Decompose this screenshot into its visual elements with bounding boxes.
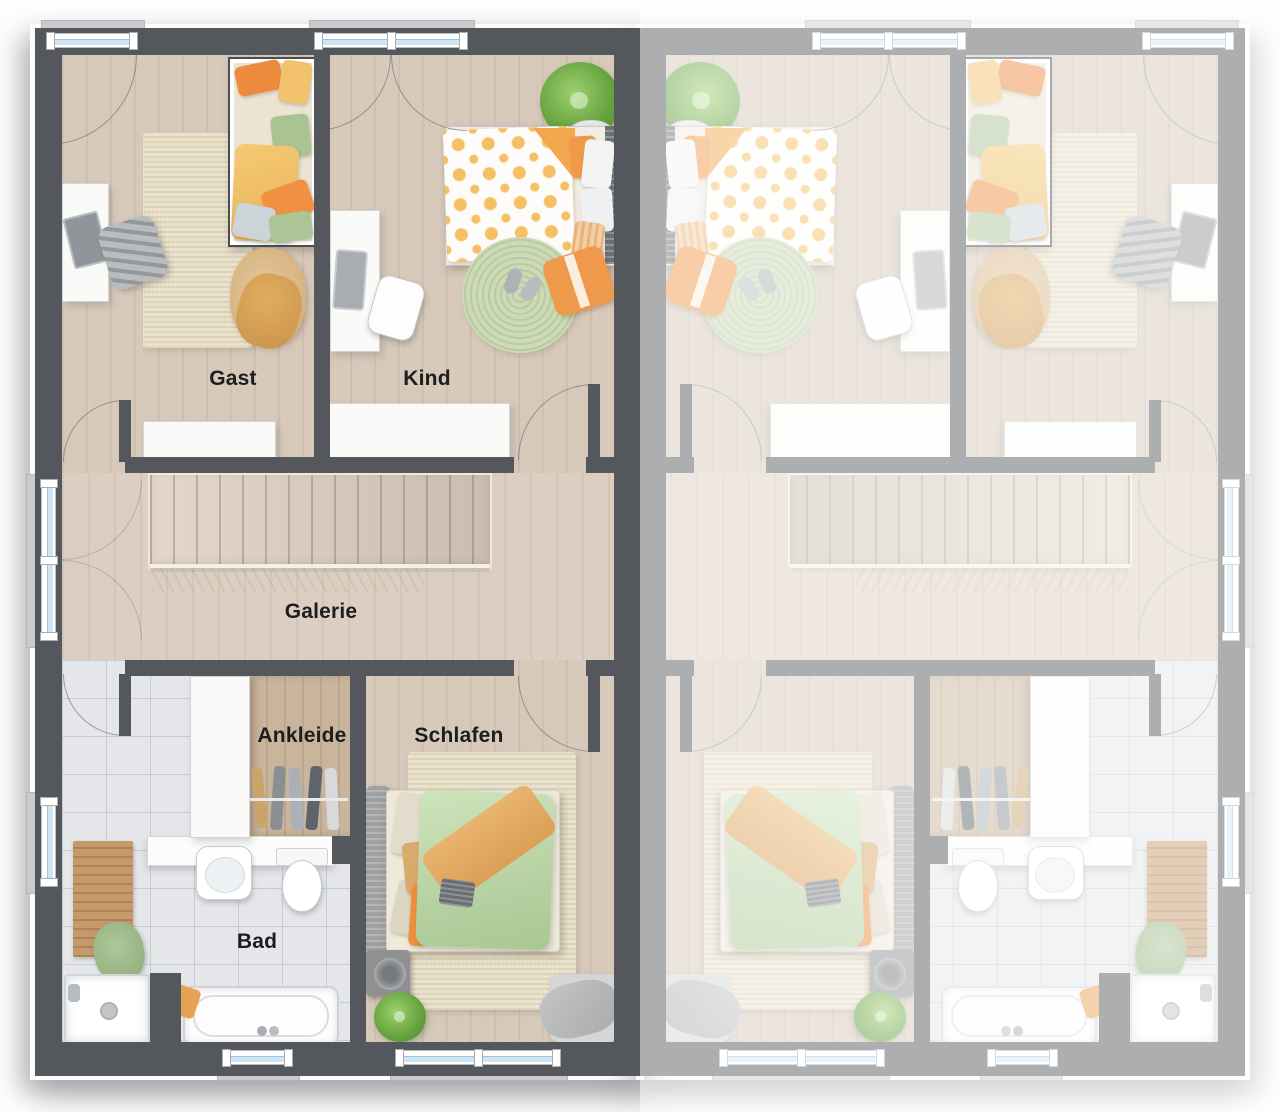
folded-item-schlafen	[438, 878, 475, 908]
clothes-rail	[932, 798, 1030, 801]
bed-gast	[962, 57, 1052, 247]
unit-left: Gast Kind Galerie Ankleide Schlafen Bad	[0, 0, 640, 1112]
window-schlafen	[720, 1050, 884, 1065]
wall-shower-stub	[150, 973, 181, 1042]
wardrobe-ankleide	[190, 676, 250, 838]
sink-basin	[205, 857, 245, 893]
stair-shadow-hatch	[152, 568, 424, 592]
sink-basin	[1035, 857, 1075, 893]
toilet-bowl	[958, 860, 998, 912]
window-cap	[957, 32, 966, 50]
sideboard-gast	[1004, 421, 1137, 459]
wall-bedrooms-galerie-1	[125, 457, 514, 473]
toilet	[274, 848, 328, 912]
window-bad-left	[1224, 798, 1239, 886]
window-cap	[459, 32, 468, 50]
window-gast	[47, 33, 137, 48]
shower-faucet	[68, 984, 80, 1002]
shower-drain	[100, 1002, 118, 1020]
window-schlafen	[396, 1050, 560, 1065]
bathtub-faucet	[257, 1026, 267, 1036]
wall-party	[640, 28, 666, 1076]
door-leaf-bad	[119, 674, 131, 736]
window-bad-bottom	[988, 1050, 1057, 1065]
pillow-yellow-gast	[967, 59, 1003, 105]
plant-schlafen	[374, 992, 426, 1042]
door-leaf-bad	[1149, 674, 1161, 736]
door-leaf-kind	[588, 384, 600, 460]
window-glass	[51, 39, 133, 45]
door-leaf-gast	[119, 400, 131, 462]
door-leaf-kind	[680, 384, 692, 460]
imac-kind	[912, 249, 948, 311]
window-cap	[1225, 32, 1234, 50]
wall-bad-schlafen	[350, 660, 366, 1042]
bathtub	[941, 986, 1097, 1046]
window-cap	[395, 1049, 404, 1067]
bed-schlafen	[366, 786, 562, 954]
window-bad-bottom	[223, 1050, 292, 1065]
wall-bad-schlafen	[914, 660, 930, 1042]
bed-gast	[228, 57, 318, 247]
window-cap	[46, 32, 55, 50]
bed-schlafen	[718, 786, 914, 954]
room-label-kind: Kind	[403, 367, 450, 391]
stairwell	[788, 473, 1132, 570]
window-glass	[992, 1056, 1053, 1062]
imac-kind	[332, 249, 368, 311]
wall-galerie-south-2	[666, 660, 694, 676]
shower-tray	[64, 974, 150, 1044]
wall-galerie-south-2	[586, 660, 614, 676]
room-label-schlafen: Schlafen	[414, 724, 503, 748]
wall-galerie-south-1	[125, 660, 514, 676]
door-leaf-schlafen	[588, 676, 600, 752]
window-cap	[719, 1049, 728, 1067]
window-glass	[1147, 39, 1229, 45]
plant-schlafen	[854, 992, 906, 1042]
window-cap	[812, 32, 821, 50]
sink	[1028, 846, 1084, 900]
window-cap	[797, 1049, 806, 1067]
window-cap	[129, 32, 138, 50]
window-cap	[1222, 556, 1240, 565]
wardrobe-ankleide	[1030, 676, 1090, 838]
window-cap	[40, 479, 58, 488]
speaker-schlafen	[870, 950, 914, 996]
window-cap	[40, 556, 58, 565]
window-cap	[884, 32, 893, 50]
room-label-galerie: Galerie	[285, 600, 358, 624]
unit-right	[640, 0, 1280, 1112]
shower-drain	[1162, 1002, 1180, 1020]
pillow-white-kind	[665, 139, 700, 190]
toilet	[952, 848, 1006, 912]
wall-divider-gast-kind	[314, 55, 330, 458]
folded-item-schlafen	[804, 878, 841, 908]
window-cap	[1222, 632, 1240, 641]
window-cap	[314, 32, 323, 50]
bathtub	[183, 986, 339, 1046]
window-bad-left	[41, 798, 56, 886]
wall-galerie-south-1	[766, 660, 1155, 676]
window-kind	[315, 33, 467, 48]
window-galerie	[41, 480, 56, 640]
window-cap	[474, 1049, 483, 1067]
window-cap	[1049, 1049, 1058, 1067]
speaker-schlafen	[366, 950, 410, 996]
window-cap	[1222, 878, 1240, 887]
pillow-yellow-gast	[277, 59, 313, 105]
sideboard-kind	[322, 403, 510, 459]
window-cap	[284, 1049, 293, 1067]
shower-tray	[1130, 974, 1216, 1044]
wall-party	[614, 28, 640, 1076]
window-kind	[813, 33, 965, 48]
window-cap	[1142, 32, 1151, 50]
window-cap	[222, 1049, 231, 1067]
window-cap	[987, 1049, 996, 1067]
window-galerie	[1224, 480, 1239, 640]
window-cap	[40, 632, 58, 641]
pillow-green2-gast	[268, 210, 313, 244]
bathtub-faucet	[1013, 1026, 1023, 1036]
window-glass	[227, 1056, 288, 1062]
window-gast	[1143, 33, 1233, 48]
sideboard-gast	[143, 421, 276, 459]
stair-shadow-hatch	[856, 568, 1128, 592]
shower-faucet	[1200, 984, 1212, 1002]
wall-vanity-stub	[930, 836, 948, 864]
window-cap	[1222, 797, 1240, 806]
sink	[196, 846, 252, 900]
window-cap	[552, 1049, 561, 1067]
window-cap	[1222, 479, 1240, 488]
window-cap	[40, 797, 58, 806]
speaker-cone	[374, 958, 406, 990]
clothes-rail	[250, 798, 348, 801]
door-leaf-schlafen	[680, 676, 692, 752]
room-label-ankleide: Ankleide	[257, 724, 346, 748]
window-cap	[876, 1049, 885, 1067]
canvas: Gast Kind Galerie Ankleide Schlafen Bad	[0, 0, 1280, 1112]
sideboard-kind	[770, 403, 958, 459]
pillow-green2-gast	[966, 210, 1011, 244]
stairwell	[148, 473, 492, 570]
window-glass	[1227, 802, 1233, 882]
wall-vanity-stub	[332, 836, 350, 864]
wall-shower-stub	[1099, 973, 1130, 1042]
window-glass	[47, 802, 53, 882]
speaker-cone	[874, 958, 906, 990]
toilet-bowl	[282, 860, 322, 912]
room-label-bad: Bad	[237, 930, 277, 954]
wall-divider-gast-kind	[950, 55, 966, 458]
room-label-gast: Gast	[209, 367, 257, 391]
wall-bedrooms-galerie-1	[766, 457, 1155, 473]
window-cap	[387, 32, 396, 50]
pillow-white-kind	[581, 139, 616, 190]
window-cap	[40, 878, 58, 887]
door-leaf-gast	[1149, 400, 1161, 462]
